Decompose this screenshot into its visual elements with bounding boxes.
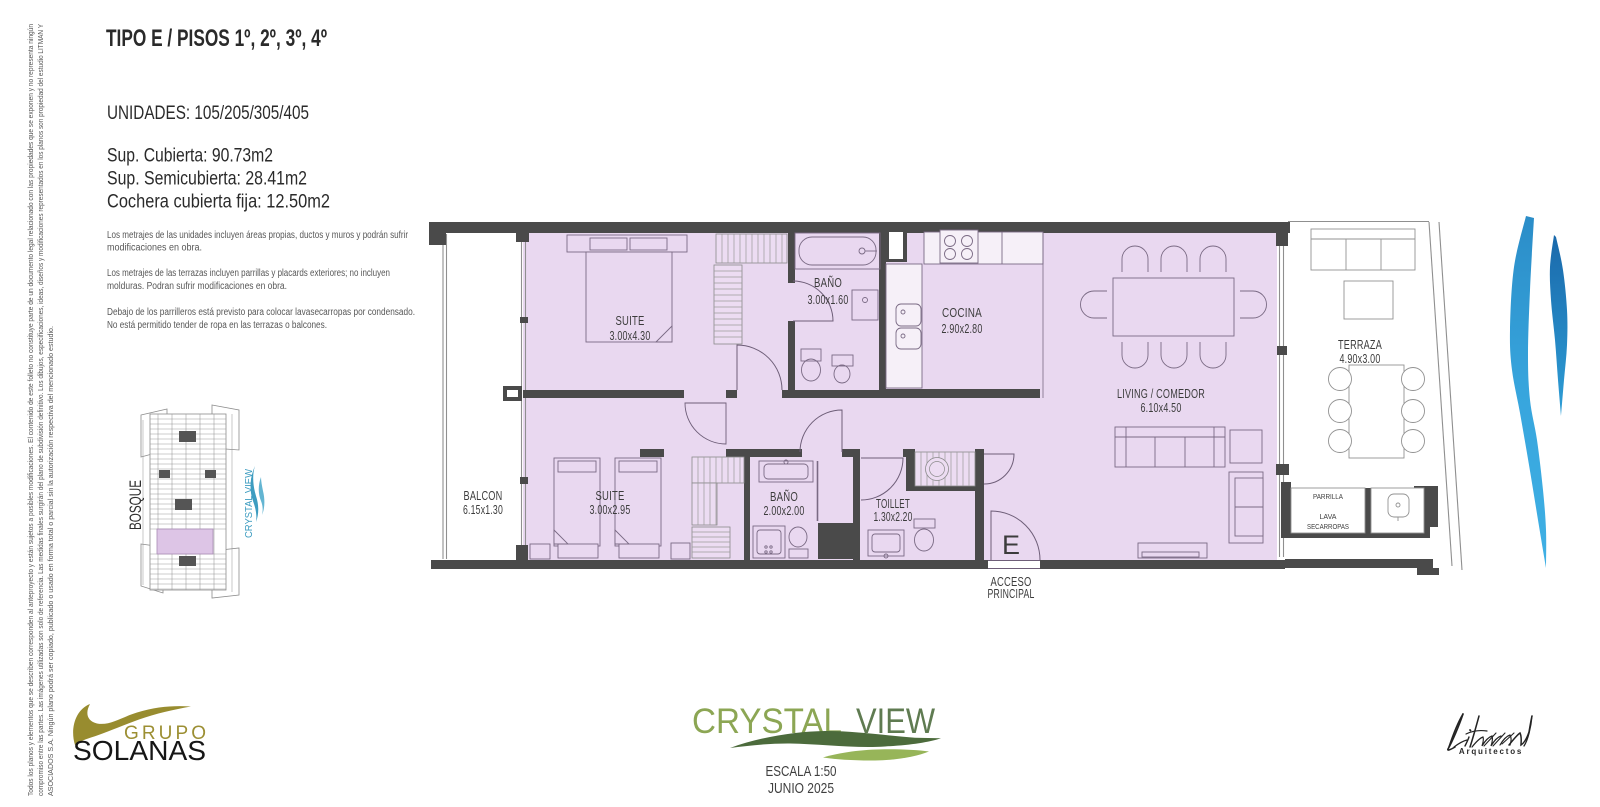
svg-text:PARRILLA: PARRILLA — [1313, 492, 1343, 501]
svg-text:Debajo de los parrilleros está: Debajo de los parrilleros está previsto … — [107, 307, 415, 318]
svg-text:1.30x2.20: 1.30x2.20 — [874, 509, 913, 524]
svg-text:3.00x2.95: 3.00x2.95 — [590, 502, 631, 517]
svg-text:6.10x4.50: 6.10x4.50 — [1141, 400, 1182, 415]
svg-text:JUNIO 2025: JUNIO 2025 — [768, 781, 834, 797]
svg-text:TERRAZA: TERRAZA — [1338, 337, 1382, 352]
svg-text:2.90x2.80: 2.90x2.80 — [942, 321, 983, 336]
svg-text:LIVING / COMEDOR: LIVING / COMEDOR — [1117, 386, 1205, 401]
svg-text:modificaciones en obra.: modificaciones en obra. — [107, 243, 202, 254]
svg-text:2.00x2.00: 2.00x2.00 — [764, 503, 805, 518]
svg-text:UNIDADES: 105/205/305/405: UNIDADES: 105/205/305/405 — [107, 102, 309, 124]
svg-text:BAÑO: BAÑO — [770, 489, 798, 504]
svg-text:No está permitido tender de ro: No está permitido tender de ropa en las … — [107, 320, 327, 331]
svg-text:Todos los planos y elementos q: Todos los planos y elementos que se desc… — [26, 24, 35, 796]
svg-text:Sup. Cubierta: 90.73m2: Sup. Cubierta: 90.73m2 — [107, 145, 273, 167]
svg-text:Sup. Semicubierta: 28.41m2: Sup. Semicubierta: 28.41m2 — [107, 168, 307, 190]
svg-text:Los metrajes de las terrazas i: Los metrajes de las terrazas incluyen pa… — [107, 268, 390, 279]
svg-text:Cochera cubierta fija: 12.50m2: Cochera cubierta fija: 12.50m2 — [107, 191, 330, 213]
svg-text:SECARROPAS: SECARROPAS — [1307, 522, 1349, 531]
svg-text:Arquitectos: Arquitectos — [1459, 747, 1523, 756]
svg-text:ASOCIADOS S.A. Ningún plano po: ASOCIADOS S.A. Ningún plano podrá ser co… — [46, 326, 55, 796]
svg-text:E: E — [1002, 530, 1020, 560]
svg-text:PRINCIPAL: PRINCIPAL — [988, 586, 1035, 601]
svg-text:compromiso entre las partes. L: compromiso entre las partes. Las imágene… — [36, 24, 45, 796]
svg-text:LAVA: LAVA — [1320, 512, 1337, 521]
svg-text:BOSQUE: BOSQUE — [127, 480, 145, 530]
svg-text:BALCON: BALCON — [464, 488, 503, 503]
svg-text:TIPO E / PISOS 1º, 2º, 3º, 4º: TIPO E / PISOS 1º, 2º, 3º, 4º — [106, 25, 327, 52]
svg-text:6.15x1.30: 6.15x1.30 — [463, 502, 503, 517]
svg-text:3.00x1.60: 3.00x1.60 — [808, 292, 849, 307]
svg-text:COCINA: COCINA — [942, 305, 982, 320]
svg-text:ESCALA 1:50: ESCALA 1:50 — [766, 764, 837, 780]
svg-text:4.90x3.00: 4.90x3.00 — [1340, 351, 1381, 366]
svg-text:SUITE: SUITE — [596, 488, 625, 503]
svg-text:SOLANAS: SOLANAS — [73, 735, 206, 766]
svg-text:3.00x4.30: 3.00x4.30 — [610, 328, 651, 343]
svg-text:SUITE: SUITE — [616, 313, 645, 328]
svg-text:molduras. Podran sufrir modifi: molduras. Podran sufrir modificaciones e… — [107, 281, 287, 292]
svg-text:BAÑO: BAÑO — [814, 275, 842, 290]
svg-text:Los metrajes de las unidades i: Los metrajes de las unidades incluyen ár… — [107, 230, 409, 241]
